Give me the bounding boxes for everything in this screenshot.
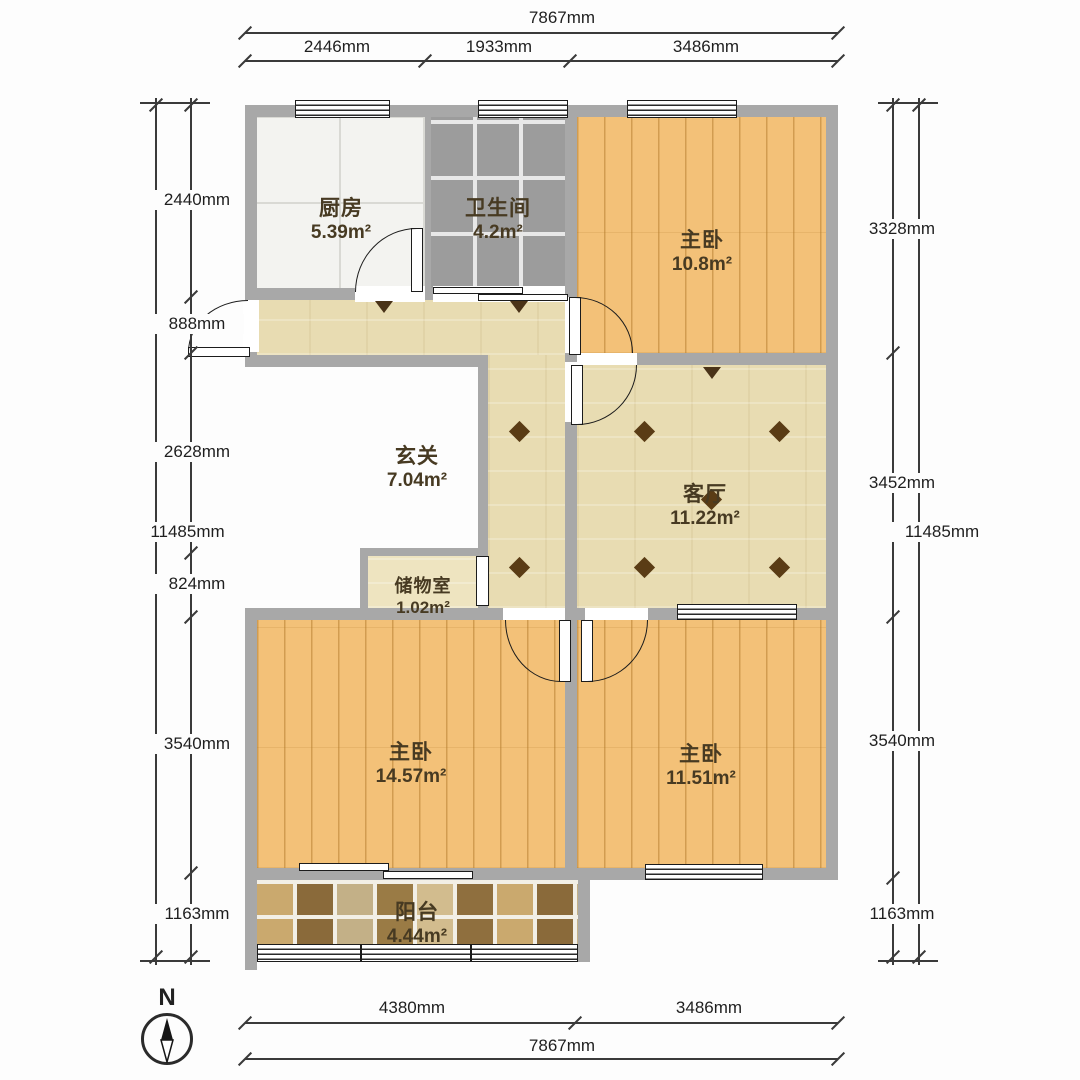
- room-area: 7.04m²: [337, 470, 497, 492]
- room-area: 1.02m²: [343, 598, 503, 618]
- compass-north-label: N: [153, 984, 181, 1012]
- living-room-label: 客厅 11.22m²: [625, 478, 785, 530]
- wall: [245, 105, 257, 300]
- dim-bottom-seg-2: 3486mm: [657, 998, 761, 1018]
- dim-left-seg-3: 2628mm: [150, 442, 244, 462]
- dim-right-overall: 11485mm: [890, 522, 994, 542]
- dim-right-seg-1: 3328mm: [855, 219, 949, 239]
- storage-label: 储物室 1.02m²: [343, 572, 503, 618]
- bedroom-sw-door-opening: [503, 608, 565, 620]
- wall: [245, 612, 257, 970]
- dim-left-seg-5: 3540mm: [150, 734, 244, 754]
- bedroom-sw-label: 主卧 14.57m²: [331, 736, 491, 788]
- dim-line: [245, 60, 838, 62]
- room-area: 4.2m²: [418, 222, 578, 244]
- room-name: 厨房: [261, 192, 421, 222]
- wall: [578, 868, 590, 962]
- dim-line: [245, 1022, 838, 1024]
- room-area: 11.22m²: [625, 508, 785, 530]
- wall: [245, 355, 488, 367]
- bedroom-se-label: 主卧 11.51m²: [621, 738, 781, 790]
- kitchen-label: 厨房 5.39m²: [261, 192, 421, 244]
- dim-left-seg-1: 2440mm: [150, 190, 244, 210]
- balcony-label: 阳台 4.44m²: [337, 896, 497, 948]
- room-area: 11.51m²: [621, 768, 781, 790]
- balcony-sliding-door-panel: [299, 863, 389, 871]
- compass-needle-icon: [157, 1017, 177, 1063]
- dim-left-seg-2: 888mm: [150, 314, 244, 334]
- room-area: 10.8m²: [622, 254, 782, 276]
- bathroom-sliding-door-panel: [433, 287, 523, 294]
- room-name: 客厅: [625, 478, 785, 508]
- dim-line: [245, 32, 838, 34]
- room-area: 14.57m²: [331, 766, 491, 788]
- room-name: 阳台: [337, 896, 497, 926]
- triangle-marker-icon: [703, 367, 721, 379]
- bathroom-label: 卫生间 4.2m²: [418, 192, 578, 244]
- wall: [360, 548, 488, 556]
- triangle-marker-icon: [375, 301, 393, 313]
- dim-line: [245, 1058, 838, 1060]
- floor-plan: 厨房 5.39m² 卫生间 4.2m² 主卧 10.8m² 玄关 7.04m² …: [0, 0, 1080, 1080]
- living-room-window: [677, 604, 797, 620]
- dim-bottom-seg-1: 4380mm: [360, 998, 464, 1018]
- dim-right-seg-3: 3540mm: [855, 731, 949, 751]
- balcony-sliding-door-panel: [383, 871, 473, 879]
- dim-right-seg-4: 1163mm: [855, 904, 949, 924]
- bedroom-ne-window: [627, 100, 737, 118]
- room-name: 玄关: [337, 440, 497, 470]
- bedroom-ne-label: 主卧 10.8m²: [622, 224, 782, 276]
- kitchen-window: [295, 100, 390, 118]
- room-name: 卫生间: [418, 192, 578, 222]
- dim-line: [878, 102, 938, 104]
- dim-top-seg-1: 2446mm: [285, 37, 389, 57]
- dim-left-seg-6: 1163mm: [150, 904, 244, 924]
- dim-left-overall: 11485mm: [138, 522, 237, 542]
- room-area: 4.44m²: [337, 926, 497, 948]
- room-area: 5.39m²: [261, 222, 421, 244]
- dim-top-seg-3: 3486mm: [654, 37, 758, 57]
- hallway-label: 玄关 7.04m²: [337, 440, 497, 492]
- bedroom-ne-door-opening: [577, 353, 637, 365]
- dim-right-seg-2: 3452mm: [855, 473, 949, 493]
- dim-bottom-overall: 7867mm: [510, 1036, 614, 1056]
- bathroom-sliding-door-panel: [478, 294, 568, 301]
- dim-top-overall: 7867mm: [505, 8, 619, 28]
- wall: [826, 105, 838, 880]
- bedroom-se-window: [645, 864, 763, 880]
- room-name: 主卧: [331, 736, 491, 766]
- triangle-marker-icon: [510, 301, 528, 313]
- bedroom-se-door-opening: [585, 608, 648, 620]
- room-name: 储物室: [343, 572, 503, 598]
- room-name: 主卧: [622, 224, 782, 254]
- bathroom-window: [478, 100, 568, 118]
- dim-line: [140, 102, 210, 104]
- dim-left-seg-4: 824mm: [150, 574, 244, 594]
- dim-top-seg-2: 1933mm: [447, 37, 551, 57]
- room-name: 主卧: [621, 738, 781, 768]
